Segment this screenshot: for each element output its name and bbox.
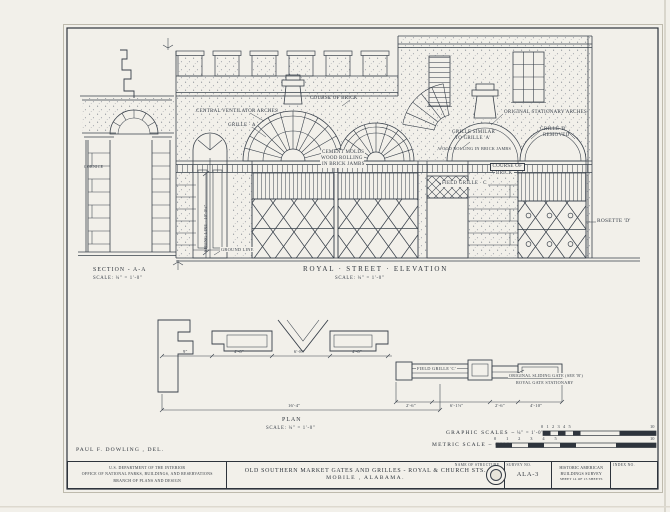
- habs-drawing-sheet: SECTION - A-A SCALE: ¼" = 1'-0" ROYAL · …: [0, 0, 670, 512]
- scale-bars: [0, 0, 670, 512]
- habs-seal-inner: [490, 469, 502, 481]
- habs-seal: [486, 465, 506, 485]
